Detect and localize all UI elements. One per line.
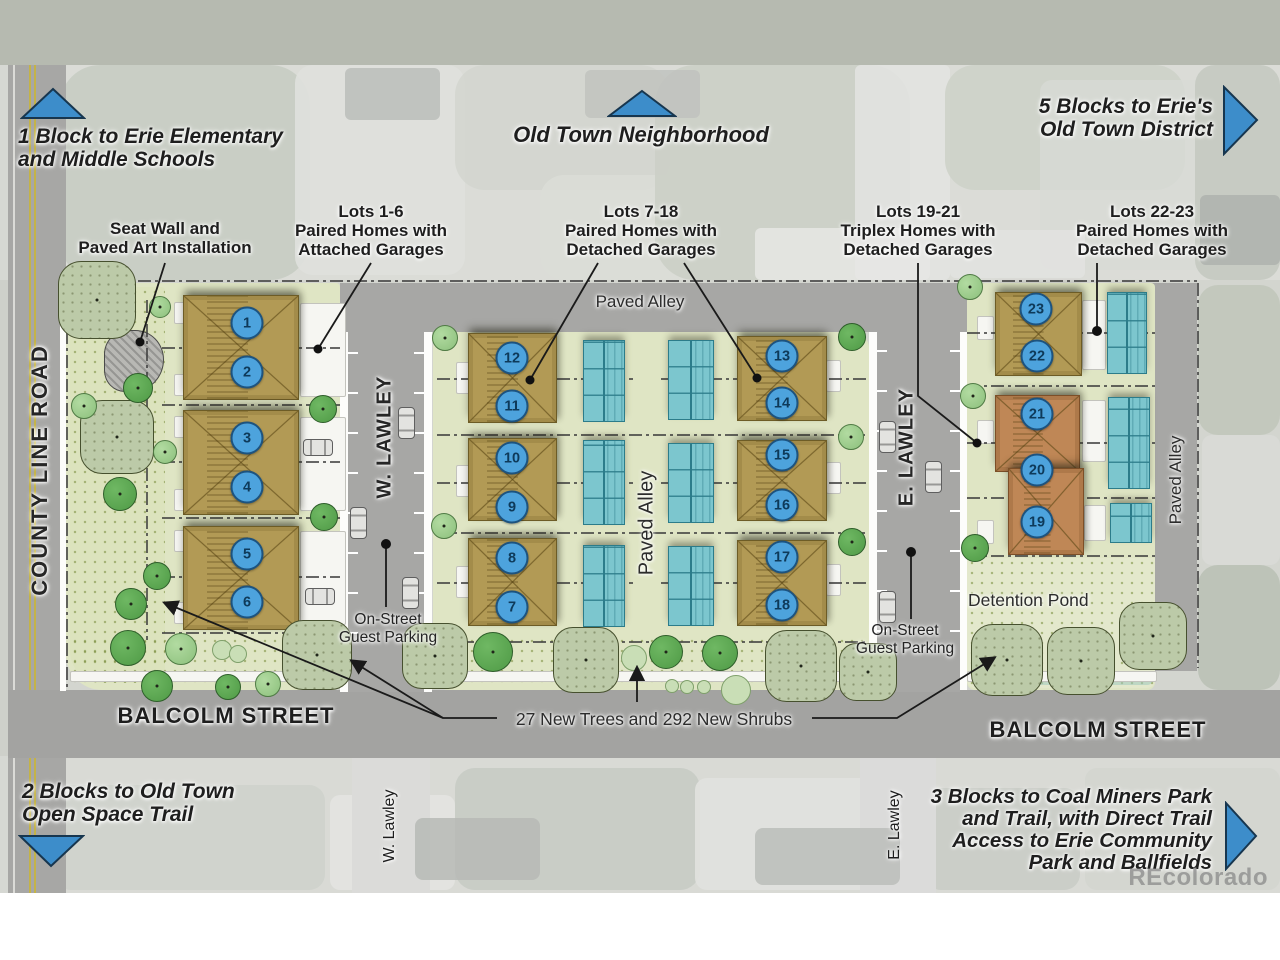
lot-marker: 20: [1021, 454, 1054, 487]
detention-pond-label: Detention Pond: [968, 590, 1089, 611]
lot-line: [1197, 283, 1199, 668]
coal-miners-label: 3 Blocks to Coal Miners Park and Trail, …: [931, 786, 1212, 875]
lot-marker: 2: [231, 356, 264, 389]
tree: [71, 393, 97, 419]
lot-marker: 14: [766, 387, 799, 420]
lots-19-21-callout: Lots 19-21 Triplex Homes with Detached G…: [841, 202, 996, 260]
detached-garage: [1110, 503, 1152, 543]
parking-tick: [950, 430, 960, 432]
car: [398, 407, 415, 439]
parking-tick: [950, 550, 960, 552]
car: [402, 577, 419, 609]
tree: [115, 588, 147, 620]
lot-marker: 23: [1020, 293, 1053, 326]
tree: [432, 325, 458, 351]
pavement: [826, 462, 841, 494]
pavement: [300, 303, 346, 397]
lots-19-21-line1: Lots 19-21: [841, 202, 996, 221]
road-edge-line: [13, 65, 15, 893]
car: [303, 439, 333, 456]
tree: [680, 680, 694, 694]
parking-tick: [877, 470, 887, 472]
tree: [153, 440, 177, 464]
tree: [103, 477, 137, 511]
w-lawley-label: W. LAWLEY: [374, 375, 397, 498]
parking-tick: [348, 472, 358, 474]
detached-garage: [1107, 292, 1147, 374]
lots-22-23-line2: Paired Homes with: [1076, 221, 1228, 240]
lot-marker: 15: [766, 439, 799, 472]
district-label-line2: Old Town District: [1039, 119, 1213, 142]
tree: [649, 635, 683, 669]
old-town-label: Old Town Neighborhood: [513, 122, 769, 148]
paved-alley-north-label: Paved Alley: [596, 292, 685, 312]
parking-tick: [950, 590, 960, 592]
photo-blob: [345, 68, 440, 120]
photo-blob: [1198, 285, 1280, 435]
parking-tick: [950, 510, 960, 512]
lots-7-18-line1: Lots 7-18: [565, 202, 717, 221]
paved-alley-east-label: Paved Alley: [1166, 436, 1186, 525]
pavement: [1084, 505, 1106, 541]
lot-marker: 10: [496, 442, 529, 475]
guest-parking-w-line2: Guest Parking: [339, 629, 437, 647]
district-label: 5 Blocks to Erie's Old Town District: [1039, 96, 1213, 141]
tree: [149, 296, 171, 318]
lot-marker: 22: [1021, 340, 1054, 373]
watermark: REcolorado: [1128, 864, 1268, 892]
tree: [702, 635, 738, 671]
guest-parking-w-line1: On-Street: [339, 611, 437, 629]
car: [305, 588, 335, 605]
guest-parking-label-east: On-Street Guest Parking: [856, 622, 954, 658]
pavement: [977, 420, 994, 444]
trees-shrubs-label: 27 New Trees and 292 New Shrubs: [516, 709, 792, 730]
lot-marker: 7: [496, 591, 529, 624]
parking-tick: [414, 512, 424, 514]
detached-garage: [668, 340, 714, 420]
down-triangle-icon: [18, 834, 85, 868]
parking-tick: [348, 552, 358, 554]
pavement: [977, 316, 994, 340]
county-line-road-label: COUNTY LINE ROAD: [27, 344, 53, 596]
site-plan-map: 1234567891011121314151617181920212223: [0, 0, 1280, 960]
lot-marker: 9: [496, 491, 529, 524]
tree: [141, 670, 173, 702]
tree: [621, 645, 647, 671]
lot-marker: 21: [1021, 398, 1054, 431]
guest-parking-e-line1: On-Street: [856, 622, 954, 640]
parking-tick: [348, 352, 358, 354]
parking-tick: [414, 352, 424, 354]
lot-line: [66, 280, 1197, 282]
lot-line: [437, 434, 869, 436]
lots-22-23-line1: Lots 22-23: [1076, 202, 1228, 221]
parking-tick: [414, 552, 424, 554]
lots-7-18-line2: Paired Homes with: [565, 221, 717, 240]
tree: [110, 630, 146, 666]
lot-marker: 3: [231, 422, 264, 455]
lot-marker: 13: [766, 340, 799, 373]
up-triangle-icon: [607, 89, 677, 118]
car: [350, 507, 367, 539]
tree: [143, 562, 171, 590]
tree: [553, 627, 619, 693]
schools-label: 1 Block to Erie Elementary and Middle Sc…: [18, 126, 283, 171]
coal-miners-line1: 3 Blocks to Coal Miners Park: [931, 786, 1212, 808]
parking-tick: [414, 432, 424, 434]
car: [879, 421, 896, 453]
tree: [697, 680, 711, 694]
tree: [665, 679, 679, 693]
lot-marker: 5: [231, 538, 264, 571]
parking-tick: [414, 472, 424, 474]
lot-line: [967, 555, 1155, 557]
open-space-line1: 2 Blocks to Old Town: [22, 781, 235, 804]
parking-tick: [950, 350, 960, 352]
lot-line: [146, 300, 148, 640]
pavement: [1082, 300, 1106, 370]
lot-line: [66, 283, 68, 690]
lots-1-6-line3: Attached Garages: [295, 240, 447, 259]
tree: [1119, 602, 1187, 670]
tree: [309, 395, 337, 423]
parking-tick: [950, 390, 960, 392]
lots-22-23-line3: Detached Garages: [1076, 240, 1228, 259]
tree: [960, 383, 986, 409]
tree: [838, 424, 864, 450]
parking-tick: [414, 392, 424, 394]
balcolm-street-label-east: BALCOLM STREET: [990, 717, 1207, 743]
e-lawley-south-label: E. Lawley: [886, 790, 904, 859]
lot-marker: 17: [766, 541, 799, 574]
photo-blob: [415, 818, 540, 880]
lot-marker: 6: [231, 586, 264, 619]
lot-marker: 1: [231, 307, 264, 340]
pavement: [1082, 400, 1106, 462]
seat-wall-line1: Seat Wall and: [78, 219, 251, 238]
right-triangle-icon: [1222, 85, 1259, 156]
open-space-label: 2 Blocks to Old Town Open Space Trail: [22, 781, 235, 826]
tree: [229, 645, 247, 663]
tree: [721, 675, 751, 705]
detached-garage: [1108, 397, 1150, 489]
balcolm-street-label-west: BALCOLM STREET: [118, 703, 335, 729]
parking-tick: [348, 592, 358, 594]
pavement: [300, 417, 346, 511]
parking-tick: [877, 550, 887, 552]
car: [879, 591, 896, 623]
tree: [58, 261, 136, 339]
tree: [765, 630, 837, 702]
parking-tick: [877, 350, 887, 352]
lot-marker: 8: [496, 542, 529, 575]
tree: [957, 274, 983, 300]
lots-7-18-line3: Detached Garages: [565, 240, 717, 259]
district-label-line1: 5 Blocks to Erie's: [1039, 96, 1213, 119]
parking-tick: [348, 432, 358, 434]
schools-label-line1: 1 Block to Erie Elementary: [18, 126, 283, 149]
tree: [165, 633, 197, 665]
coal-miners-line2: and Trail, with Direct Trail: [931, 808, 1212, 830]
seat-wall-line2: Paved Art Installation: [78, 238, 251, 257]
detached-garage: [668, 546, 714, 626]
parking-tick: [950, 470, 960, 472]
parking-tick: [877, 510, 887, 512]
guest-parking-e-line2: Guest Parking: [856, 640, 954, 658]
guest-parking-label-west: On-Street Guest Parking: [339, 611, 437, 647]
tree: [255, 671, 281, 697]
e-lawley-label: E. LAWLEY: [896, 388, 919, 507]
lot-marker: 12: [496, 342, 529, 375]
lot-marker: 11: [496, 390, 529, 423]
detached-garage: [583, 340, 625, 422]
tree: [123, 373, 153, 403]
open-space-line2: Open Space Trail: [22, 804, 235, 827]
car: [925, 461, 942, 493]
photo-blob: [1202, 435, 1280, 565]
seat-wall-callout: Seat Wall and Paved Art Installation: [78, 219, 251, 257]
photo-blob: [1198, 565, 1280, 690]
detached-garage: [583, 440, 625, 525]
lots-7-18-callout: Lots 7-18 Paired Homes with Detached Gar…: [565, 202, 717, 260]
lots-19-21-line3: Detached Garages: [841, 240, 996, 259]
photo-blob: [755, 828, 900, 885]
tree: [838, 323, 866, 351]
lots-19-21-line2: Triplex Homes with: [841, 221, 996, 240]
lot-line: [967, 385, 1155, 387]
tree: [473, 632, 513, 672]
detached-garage: [668, 443, 714, 523]
tree: [961, 534, 989, 562]
lot-marker: 16: [766, 489, 799, 522]
detached-garage: [583, 545, 625, 627]
tree: [971, 624, 1043, 696]
lots-22-23-callout: Lots 22-23 Paired Homes with Detached Ga…: [1076, 202, 1228, 260]
coal-miners-line3: Access to Erie Community: [931, 830, 1212, 852]
schools-label-line2: and Middle Schools: [18, 149, 283, 172]
right-triangle-icon: [1224, 801, 1258, 871]
lot-marker: 19: [1021, 506, 1054, 539]
tree: [431, 513, 457, 539]
tree: [1047, 627, 1115, 695]
w-lawley-south-label: W. Lawley: [381, 790, 399, 863]
parking-tick: [348, 392, 358, 394]
lots-1-6-callout: Lots 1-6 Paired Homes with Attached Gara…: [295, 202, 447, 260]
paved-alley-center-label: Paved Alley: [636, 471, 659, 576]
lots-1-6-line2: Paired Homes with: [295, 221, 447, 240]
lots-1-6-line1: Lots 1-6: [295, 202, 447, 221]
tree: [838, 528, 866, 556]
lot-marker: 18: [766, 589, 799, 622]
tree: [215, 674, 241, 700]
up-triangle-icon: [20, 87, 86, 120]
parking-tick: [877, 390, 887, 392]
pavement: [826, 360, 841, 392]
lot-marker: 4: [231, 471, 264, 504]
tree: [310, 503, 338, 531]
pavement: [826, 564, 841, 596]
